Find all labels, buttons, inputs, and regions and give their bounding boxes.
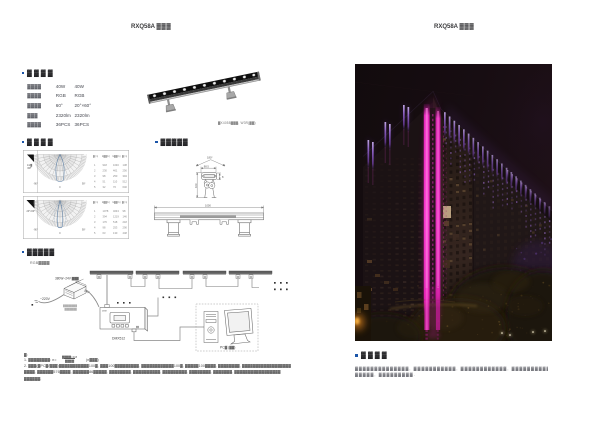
svg-text:E▓▓(lx): E▓▓(lx)	[113, 201, 121, 204]
svg-text:180°: 180°	[207, 156, 213, 160]
svg-text:20°×60°: 20°×60°	[27, 210, 36, 213]
svg-text:230: 230	[103, 169, 108, 173]
svg-text:1219: 1219	[113, 215, 119, 219]
svg-text:4643: 4643	[113, 209, 119, 213]
svg-text:DMX512: DMX512	[112, 337, 125, 341]
svg-text:▓(m): ▓(m)	[122, 155, 127, 158]
svg-text:▓(m): ▓(m)	[93, 155, 98, 158]
svg-text:218: 218	[123, 220, 128, 224]
svg-text:176: 176	[103, 220, 108, 224]
svg-text:-90°: -90°	[34, 230, 38, 232]
svg-text:▓(m): ▓(m)	[122, 201, 127, 204]
svg-text:290: 290	[123, 226, 128, 230]
svg-text:394: 394	[123, 174, 128, 178]
svg-text:-90°: -90°	[34, 184, 38, 186]
svg-text:~220V: ~220V	[40, 297, 51, 301]
svg-text:394: 394	[103, 215, 108, 219]
svg-text:512: 512	[123, 180, 128, 184]
svg-text:461: 461	[113, 169, 118, 173]
svg-text:918: 918	[103, 163, 108, 167]
svg-text:E▓▓(lx): E▓▓(lx)	[113, 155, 121, 158]
svg-text:▓(m): ▓(m)	[93, 201, 98, 204]
svg-text:103: 103	[194, 183, 198, 188]
svg-text:253: 253	[113, 226, 118, 230]
svg-text:98.5: 98.5	[204, 165, 210, 169]
svg-text:PC▓ (▓▓): PC▓ (▓▓)	[220, 346, 235, 350]
svg-text:130: 130	[113, 231, 118, 235]
svg-text:138: 138	[123, 163, 128, 167]
svg-text:E▓▓(lx): E▓▓(lx)	[102, 155, 110, 158]
svg-text:E▓▓(lx): E▓▓(lx)	[102, 201, 110, 204]
svg-text:90°: 90°	[82, 230, 86, 232]
svg-text:1078: 1078	[103, 209, 109, 213]
svg-text:256: 256	[123, 169, 128, 173]
svg-text:1046: 1046	[113, 163, 119, 167]
svg-text:146: 146	[123, 215, 128, 219]
svg-text:90°: 90°	[82, 184, 86, 186]
svg-text:110: 110	[113, 180, 118, 184]
svg-text:▓▓▓▓▓▓▓: ▓▓▓▓▓▓▓	[65, 308, 77, 311]
svg-text:448: 448	[123, 231, 128, 235]
svg-text:1000: 1000	[205, 203, 211, 207]
svg-text:640: 640	[123, 185, 128, 189]
svg-text:518: 518	[113, 220, 118, 224]
svg-text:8: 8	[222, 175, 224, 179]
svg-text:380W~24V ▓▓▓: 380W~24V ▓▓▓	[55, 277, 79, 281]
svg-text:60°: 60°	[28, 166, 32, 170]
svg-text:DMX: DMX	[102, 311, 107, 313]
svg-text:250: 250	[113, 174, 118, 178]
